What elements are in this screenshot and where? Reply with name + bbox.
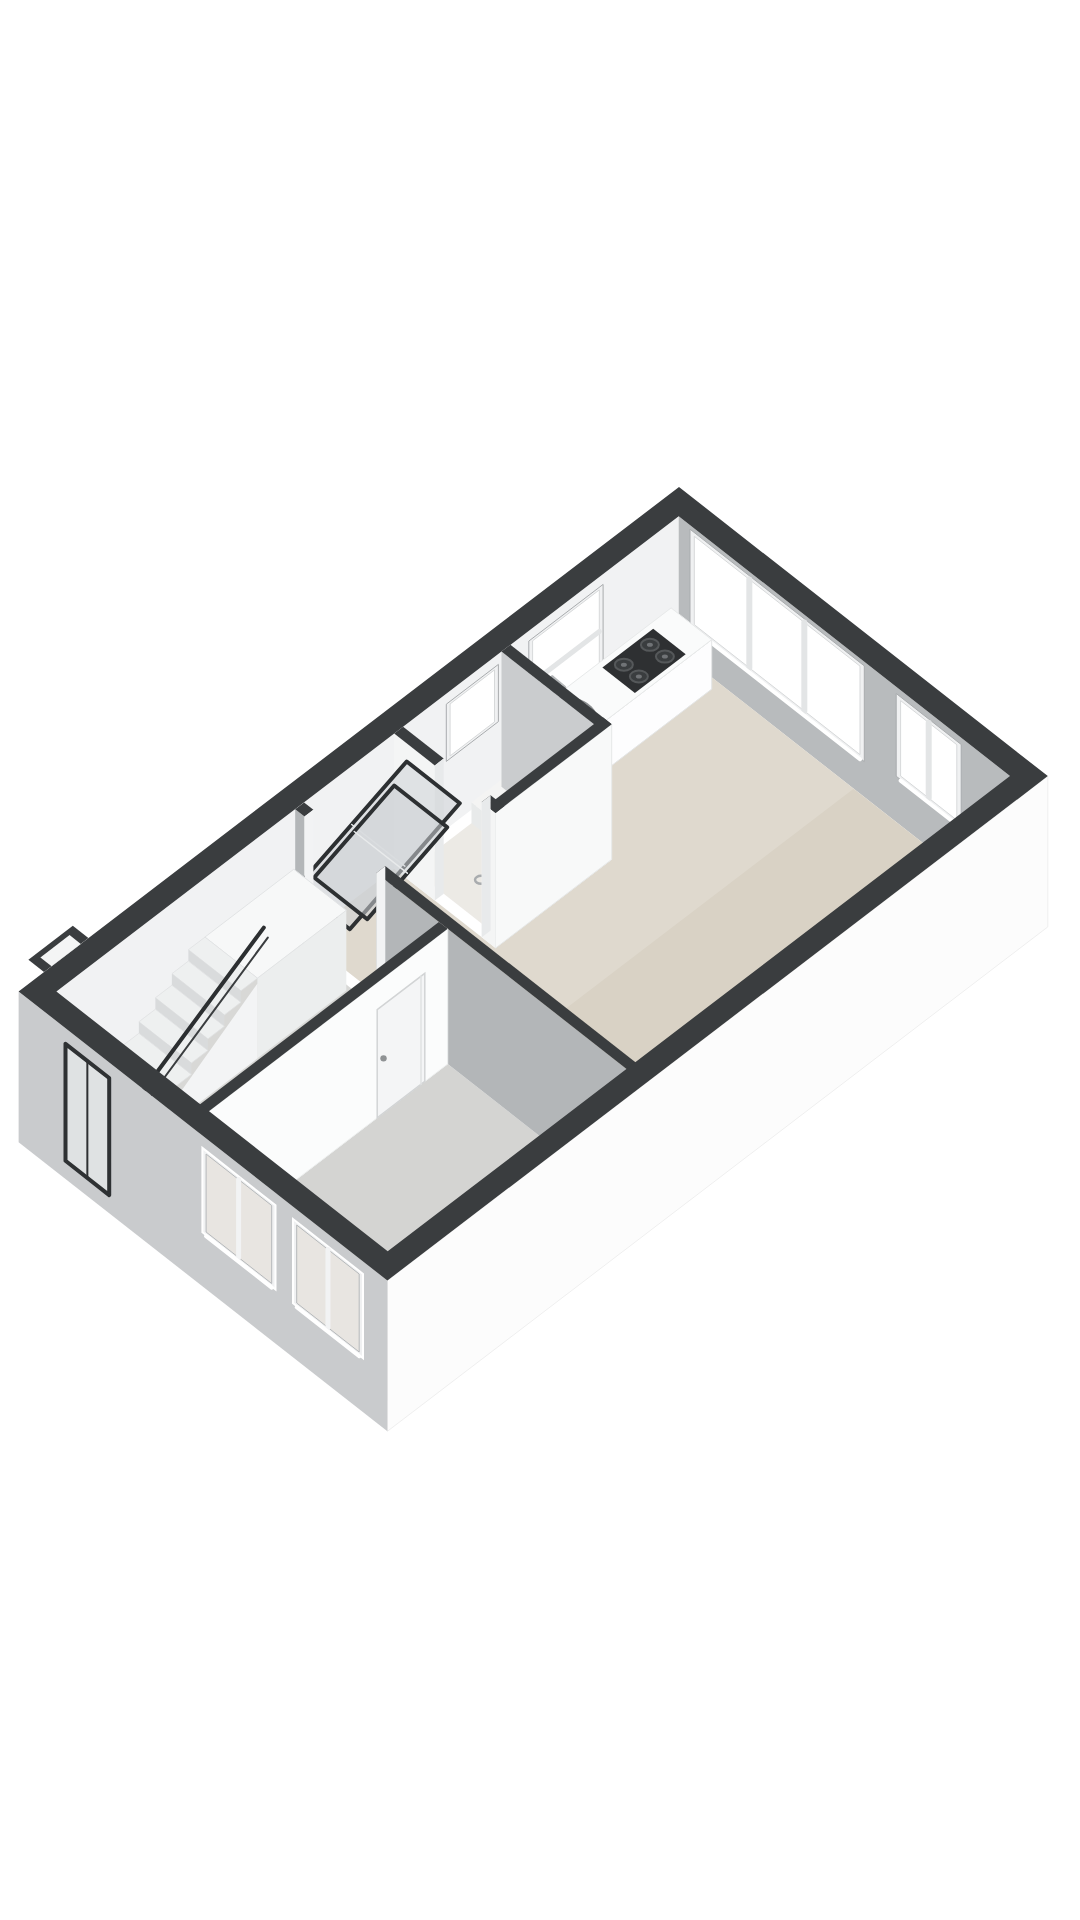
hob-burner-cap-4 bbox=[636, 674, 642, 678]
hob-burner-cap-2 bbox=[662, 655, 668, 659]
hob-burner-cap-1 bbox=[647, 643, 653, 647]
bathroom-door-jamb-2 bbox=[482, 795, 491, 937]
hob-burner-cap-3 bbox=[621, 663, 627, 667]
bedroom-door-handle bbox=[380, 1055, 386, 1061]
floor-plan-3d bbox=[0, 0, 1080, 1920]
floor-plan-page: 3d-floor-plan-render bbox=[0, 0, 1080, 1920]
